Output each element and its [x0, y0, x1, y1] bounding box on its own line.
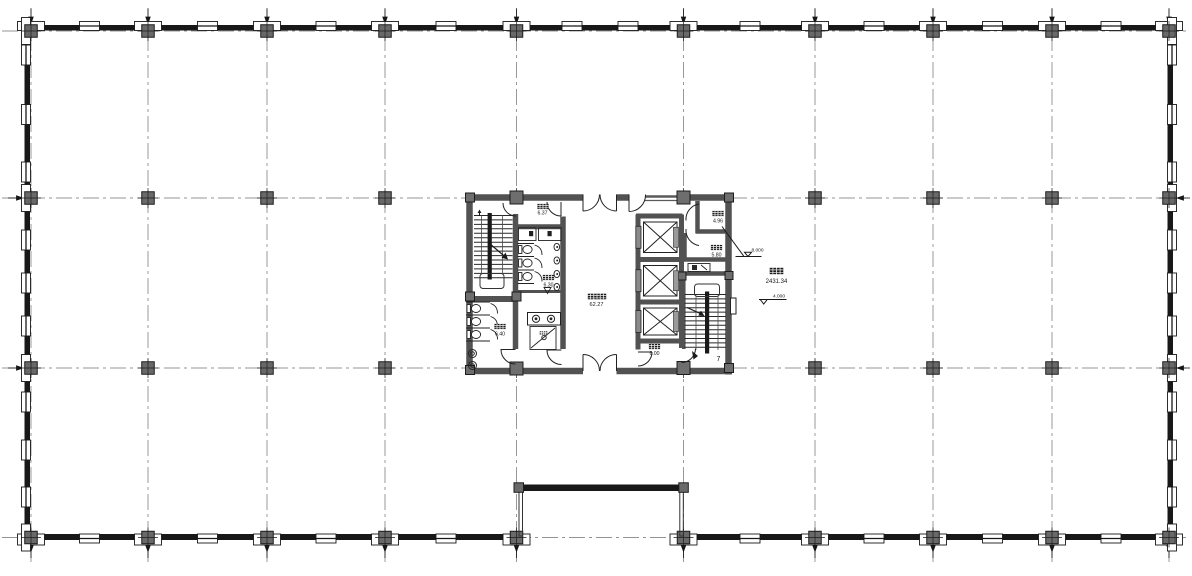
- svg-text:2431.34: 2431.34: [766, 279, 788, 285]
- svg-text:6.37: 6.37: [537, 211, 547, 217]
- svg-text:7: 7: [717, 356, 721, 363]
- svg-text:4.96: 4.96: [713, 219, 723, 225]
- svg-text:6.40: 6.40: [495, 332, 505, 338]
- svg-text:4.000: 4.000: [773, 294, 785, 300]
- svg-text:6.00: 6.00: [649, 351, 659, 357]
- svg-text:5.80: 5.80: [711, 253, 721, 259]
- svg-text:62.27: 62.27: [590, 302, 604, 308]
- svg-text:8.000: 8.000: [751, 248, 763, 254]
